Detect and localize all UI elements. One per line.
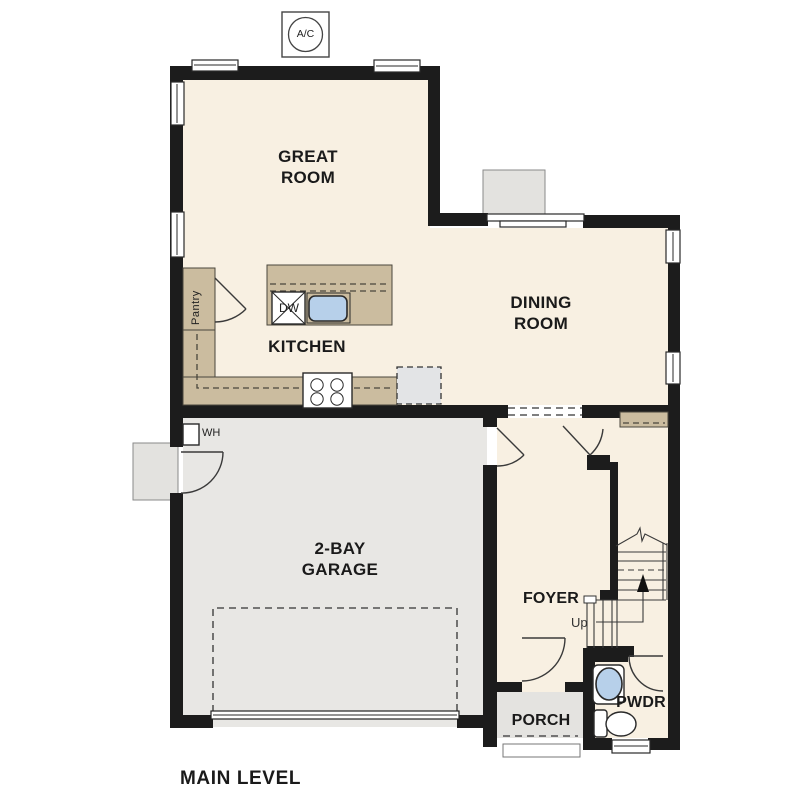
wall-dining-top-left — [428, 213, 488, 226]
toilet — [594, 710, 636, 737]
wall-garage-right-a — [483, 418, 497, 427]
wall-hall-jog — [587, 455, 610, 470]
wall-powder-bottom-right — [648, 738, 680, 750]
water-heater-box — [183, 424, 199, 445]
wall-right — [668, 215, 680, 750]
exterior-bay-block — [483, 170, 545, 215]
wall-dining-bottom-left — [483, 405, 508, 418]
wall-porch-left — [483, 692, 497, 747]
wall-foyer-bottom-left — [483, 682, 522, 692]
ac-label: A/C — [282, 28, 329, 40]
foyer-label: FOYER — [520, 589, 582, 608]
garage-door — [211, 711, 459, 719]
dishwasher-label: DW — [275, 301, 303, 315]
wall-stair-side — [610, 462, 618, 600]
porch-label: PORCH — [506, 711, 576, 730]
wall-dining-top-right — [583, 215, 680, 228]
stair-newel — [584, 596, 596, 603]
counter-bottom-2 — [352, 377, 397, 405]
floor-plan-drawing — [0, 0, 810, 810]
powder-room-label: PWDR — [614, 693, 668, 712]
wall-powder-bottom-left — [583, 738, 612, 750]
sliding-door-panel-1 — [487, 214, 584, 221]
plan-title: MAIN LEVEL — [180, 768, 301, 790]
kitchen-sink — [309, 296, 347, 321]
entry-bench — [620, 412, 668, 427]
range-stove — [303, 373, 352, 408]
floor-plan: GREAT ROOM DINING ROOM KITCHEN 2-BAY GAR… — [0, 0, 810, 810]
garage-label: 2-BAY GARAGE — [285, 539, 395, 580]
wall-garage-bottom-left — [170, 715, 213, 728]
water-heater-label: WH — [202, 427, 220, 439]
side-door-landing — [133, 443, 178, 500]
kitchen-label: KITCHEN — [257, 337, 357, 358]
wall-garage-right-b — [483, 465, 497, 692]
dining-room-label: DINING ROOM — [491, 293, 591, 334]
porch-step — [503, 744, 580, 757]
great-room-label: GREAT ROOM — [258, 147, 358, 188]
stairs-up-label: Up — [571, 615, 588, 630]
counter-bottom-1 — [183, 377, 303, 405]
pantry-label: Pantry — [190, 277, 202, 325]
wall-left-lower — [170, 493, 183, 728]
refrigerator — [397, 367, 441, 404]
sliding-door-panel-2 — [500, 221, 566, 227]
wall-stair-corner — [600, 590, 618, 600]
wall-greatroom-right — [428, 66, 440, 221]
